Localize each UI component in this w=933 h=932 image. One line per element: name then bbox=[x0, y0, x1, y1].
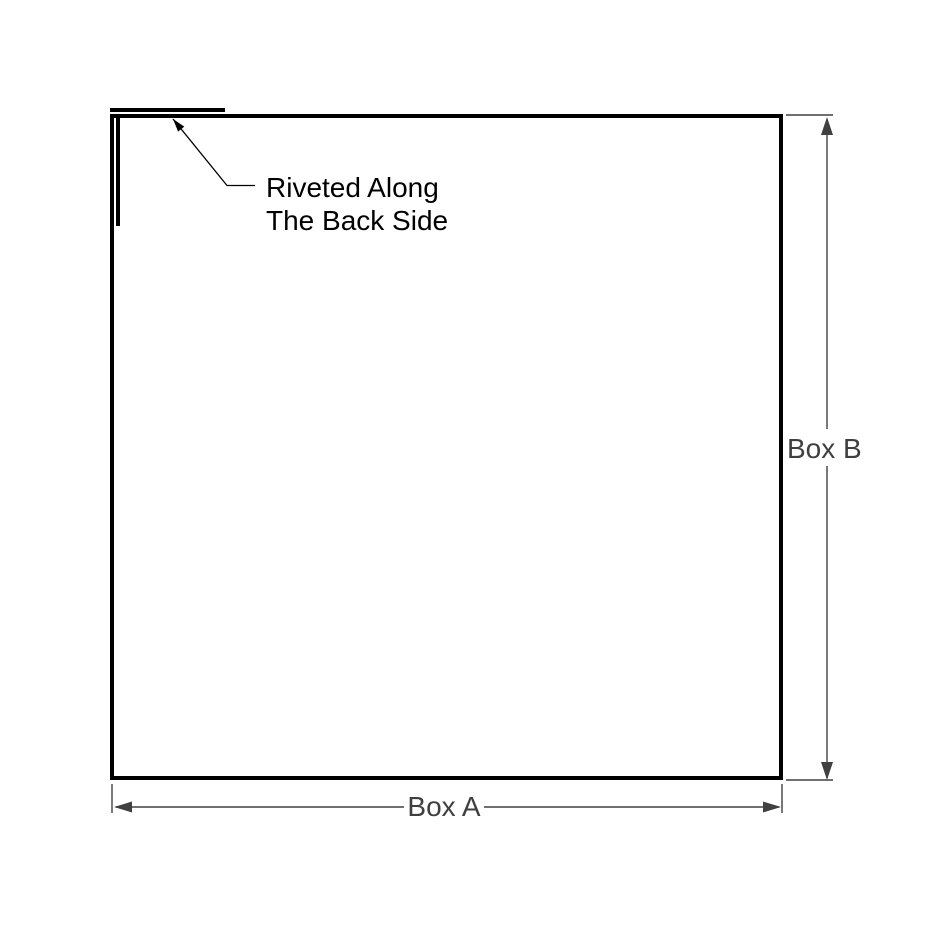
leader-path bbox=[173, 119, 255, 186]
height-arrowhead-down-icon bbox=[821, 762, 833, 780]
box-a-label: Box A bbox=[404, 793, 484, 821]
leader-line bbox=[173, 119, 255, 186]
height-arrowhead-up-icon bbox=[821, 117, 833, 135]
technical-drawing-canvas: Riveted Along The Back Side Box A Box B bbox=[0, 0, 933, 932]
width-arrowhead-right-icon bbox=[763, 802, 781, 813]
box-b-label: Box B bbox=[787, 435, 862, 463]
leader-arrowhead-icon bbox=[173, 119, 184, 132]
riveted-flap bbox=[110, 110, 225, 226]
riveted-note-line1: Riveted Along bbox=[266, 171, 448, 204]
riveted-note: Riveted Along The Back Side bbox=[266, 171, 448, 237]
width-arrowhead-left-icon bbox=[114, 802, 132, 813]
riveted-note-line2: The Back Side bbox=[266, 204, 448, 237]
